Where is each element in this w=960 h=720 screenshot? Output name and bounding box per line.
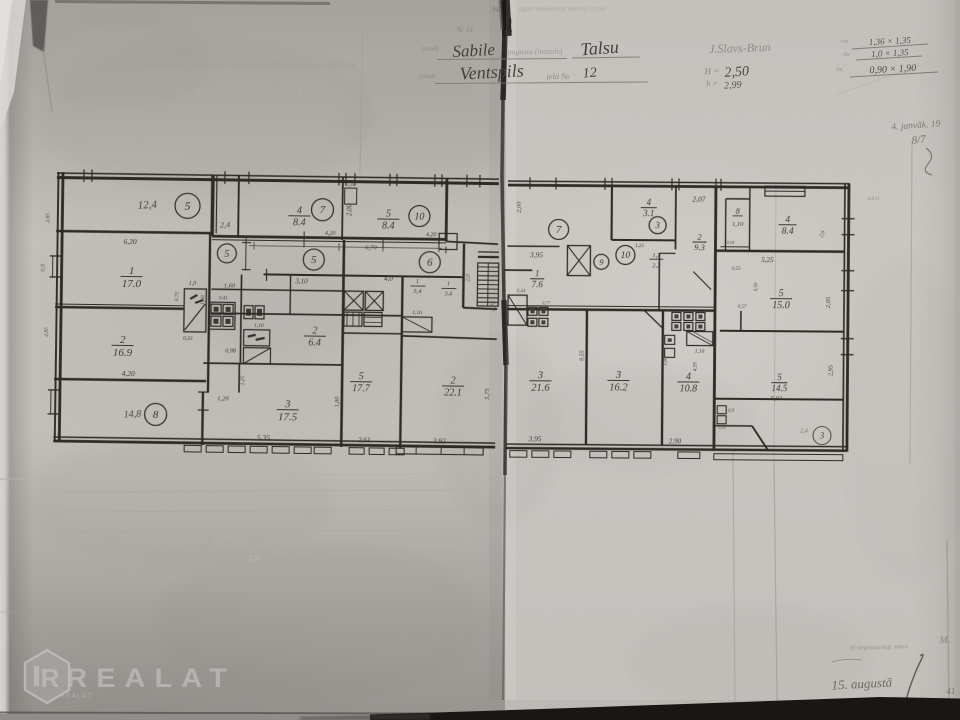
svg-text:h =: h = [706, 79, 718, 88]
svg-text:7: 7 [320, 204, 326, 216]
svg-text:5,35: 5,35 [257, 433, 270, 442]
svg-text:2,85: 2,85 [44, 327, 50, 337]
svg-text:5: 5 [224, 249, 229, 260]
svg-text:5: 5 [184, 199, 190, 213]
svg-text:4: 4 [297, 205, 302, 216]
svg-text:2,95: 2,95 [827, 364, 834, 376]
svg-text:REALAT: REALAT [66, 663, 235, 693]
svg-text:8.4: 8.4 [382, 221, 395, 232]
svg-text:2,90: 2,90 [669, 437, 682, 445]
svg-text:0,33: 0,33 [183, 336, 193, 342]
svg-text:№ 41: № 41 [455, 25, 474, 35]
svg-text:колхоз апказ: колхоз апказ [234, 108, 296, 117]
svg-text:3: 3 [537, 370, 543, 381]
svg-text:6,20: 6,20 [123, 237, 136, 246]
svg-text:17.7: 17.7 [352, 383, 371, 394]
svg-text:ielā №: ielā № [546, 71, 569, 81]
svg-text:1,25: 1,25 [240, 376, 246, 386]
svg-text:1: 1 [416, 278, 419, 285]
svg-text:2,61: 2,61 [358, 436, 370, 444]
svg-text:1,40: 1,40 [346, 183, 355, 188]
svg-text:15.0: 15.0 [772, 300, 790, 311]
svg-text:17.0: 17.0 [122, 278, 142, 290]
svg-text:4,20: 4,20 [325, 230, 336, 237]
svg-text:№: № [493, 5, 502, 14]
svg-text:2: 2 [451, 376, 456, 387]
svg-text:8: 8 [736, 207, 740, 216]
svg-text:16.9: 16.9 [113, 347, 133, 359]
svg-text:3.1: 3.1 [642, 208, 654, 218]
svg-text:3: 3 [284, 398, 291, 410]
svg-text:0,55: 0,55 [732, 267, 741, 272]
svg-text:17.5: 17.5 [278, 411, 298, 423]
svg-text:0,98: 0,98 [225, 348, 236, 354]
svg-text:4,20: 4,20 [426, 231, 437, 238]
svg-text:2,11: 2,11 [249, 554, 261, 563]
svg-text:14,8: 14,8 [123, 409, 141, 421]
svg-text:Ventspils: Ventspils [459, 60, 524, 83]
svg-text:раgasta (mazais): раgasta (mazais) [506, 47, 562, 57]
svg-text:4: 4 [647, 197, 652, 207]
svg-text:1: 1 [535, 268, 540, 278]
svg-text:3,95: 3,95 [527, 434, 541, 443]
svg-text:Выкопировка ил орбанизациялан: Выкопировка ил орбанизациялан глава [133, 60, 357, 71]
svg-text:16.2: 16.2 [609, 382, 628, 393]
svg-text:Sabile: Sabile [452, 40, 496, 61]
svg-text:21.6: 21.6 [531, 383, 550, 394]
svg-text:Talsu: Talsu [580, 37, 620, 60]
svg-text:7.6: 7.6 [532, 279, 544, 289]
svg-text:2,00: 2,00 [345, 203, 353, 216]
svg-text:8.4: 8.4 [293, 217, 306, 228]
svg-text:2,95: 2,95 [825, 296, 832, 308]
svg-text:5,4: 5,4 [413, 288, 422, 295]
svg-text:7: 7 [556, 224, 562, 236]
svg-text:2,4: 2,4 [220, 220, 230, 229]
svg-text:1,10: 1,10 [732, 221, 744, 228]
svg-text:0,41: 0,41 [219, 296, 228, 301]
svg-text:1: 1 [129, 265, 135, 277]
svg-text:3,4: 3,4 [444, 290, 453, 297]
svg-text:2,4: 2,4 [800, 427, 808, 434]
svg-text:дв.: дв. [836, 66, 844, 73]
svg-text:дв.: дв. [843, 51, 851, 58]
svg-text:15. augustā: 15. augustā [831, 674, 893, 692]
svg-text:4,95: 4,95 [692, 361, 699, 371]
svg-text:10.8: 10.8 [680, 383, 698, 394]
svg-text:4.8.11: 4.8.11 [868, 196, 880, 202]
svg-text:14.5: 14.5 [771, 383, 787, 393]
svg-text:8: 8 [153, 409, 159, 421]
svg-text:3: 3 [615, 370, 621, 381]
svg-text:10: 10 [621, 251, 631, 261]
svg-text:1,20: 1,20 [217, 395, 229, 402]
svg-text:3,10: 3,10 [294, 277, 308, 285]
svg-text:4: 4 [785, 215, 790, 225]
svg-text:ст.: ст. [840, 38, 850, 45]
svg-text:1,60: 1,60 [200, 295, 206, 305]
svg-text:0,50: 0,50 [754, 282, 759, 291]
svg-text:5: 5 [359, 371, 364, 382]
svg-text:6,70: 6,70 [365, 244, 377, 251]
svg-text:REALAT: REALAT [60, 693, 93, 700]
svg-text:4,20: 4,20 [122, 369, 135, 378]
svg-text:5: 5 [386, 209, 391, 220]
svg-text:2,00: 2,00 [516, 201, 523, 213]
svg-text:5,75: 5,75 [484, 388, 491, 400]
svg-text:12,4: 12,4 [137, 199, 157, 212]
svg-text:0,72: 0,72 [174, 292, 180, 302]
svg-text:9.3: 9.3 [694, 242, 705, 252]
svg-text:5: 5 [311, 254, 317, 266]
svg-text:1,16: 1,16 [412, 310, 422, 316]
svg-text:(уезд): (уезд) [422, 45, 440, 53]
svg-text:2,07: 2,07 [692, 195, 705, 204]
svg-text:12: 12 [582, 66, 597, 82]
svg-text:4,0: 4,0 [384, 275, 393, 283]
svg-text:R: R [41, 663, 60, 693]
svg-text:0,9: 0,9 [728, 409, 735, 414]
svg-text:9,55: 9,55 [580, 350, 586, 361]
svg-text:1,16: 1,16 [254, 323, 264, 329]
svg-text:2,99: 2,99 [724, 79, 742, 91]
svg-text:2: 2 [120, 334, 126, 346]
svg-text:2,50: 2,50 [724, 64, 749, 81]
svg-text:2,85: 2,85 [45, 213, 51, 223]
svg-text:0,44: 0,44 [517, 289, 526, 294]
svg-text:0,9: 0,9 [41, 264, 47, 272]
svg-text:М.: М. [938, 635, 950, 647]
svg-text:J.Slavs-Brun: J.Slavs-Brun [709, 40, 771, 56]
svg-text:3,92: 3,92 [432, 437, 446, 445]
svg-text:6.4: 6.4 [308, 338, 321, 349]
svg-text:5: 5 [777, 372, 782, 382]
svg-text:2: 2 [312, 326, 317, 337]
svg-text:валстс нозиме апбувес гады: валстс нозиме апбувес гады [198, 87, 343, 96]
svg-text:2,0: 2,0 [466, 274, 472, 282]
svg-text:22.1: 22.1 [444, 387, 462, 398]
svg-text:1,80: 1,80 [335, 397, 341, 408]
svg-text:ЦЕНТРАЛЬНОЕ БЮРО ТЕХН: ЦЕНТРАЛЬНОЕ БЮРО ТЕХН [519, 7, 607, 13]
svg-text:H =: H = [703, 66, 719, 77]
svg-text:3: 3 [819, 431, 825, 441]
svg-text:10: 10 [414, 211, 424, 222]
svg-text:0,57: 0,57 [738, 305, 747, 310]
svg-text:улица: улица [418, 72, 436, 80]
svg-text:41: 41 [946, 686, 956, 696]
svg-text:1,16: 1,16 [695, 349, 705, 355]
svg-text:8/7: 8/7 [911, 133, 927, 146]
svg-text:3,80: 3,80 [663, 356, 669, 367]
svg-text:1,60: 1,60 [224, 282, 236, 289]
svg-text:1,25: 1,25 [635, 244, 644, 249]
svg-text:3,95: 3,95 [529, 250, 543, 259]
svg-text:4,75: 4,75 [490, 301, 497, 312]
svg-text:8.4: 8.4 [782, 227, 794, 237]
svg-text:измер годъ: измер годъ [263, 136, 317, 145]
svg-text:4: 4 [686, 371, 691, 382]
svg-text:3: 3 [654, 220, 660, 230]
svg-text:5,25: 5,25 [761, 256, 774, 264]
svg-text:1: 1 [447, 281, 450, 287]
svg-text:5: 5 [779, 288, 784, 299]
svg-text:1,0: 1,0 [189, 281, 197, 287]
svg-text:6: 6 [427, 257, 433, 269]
